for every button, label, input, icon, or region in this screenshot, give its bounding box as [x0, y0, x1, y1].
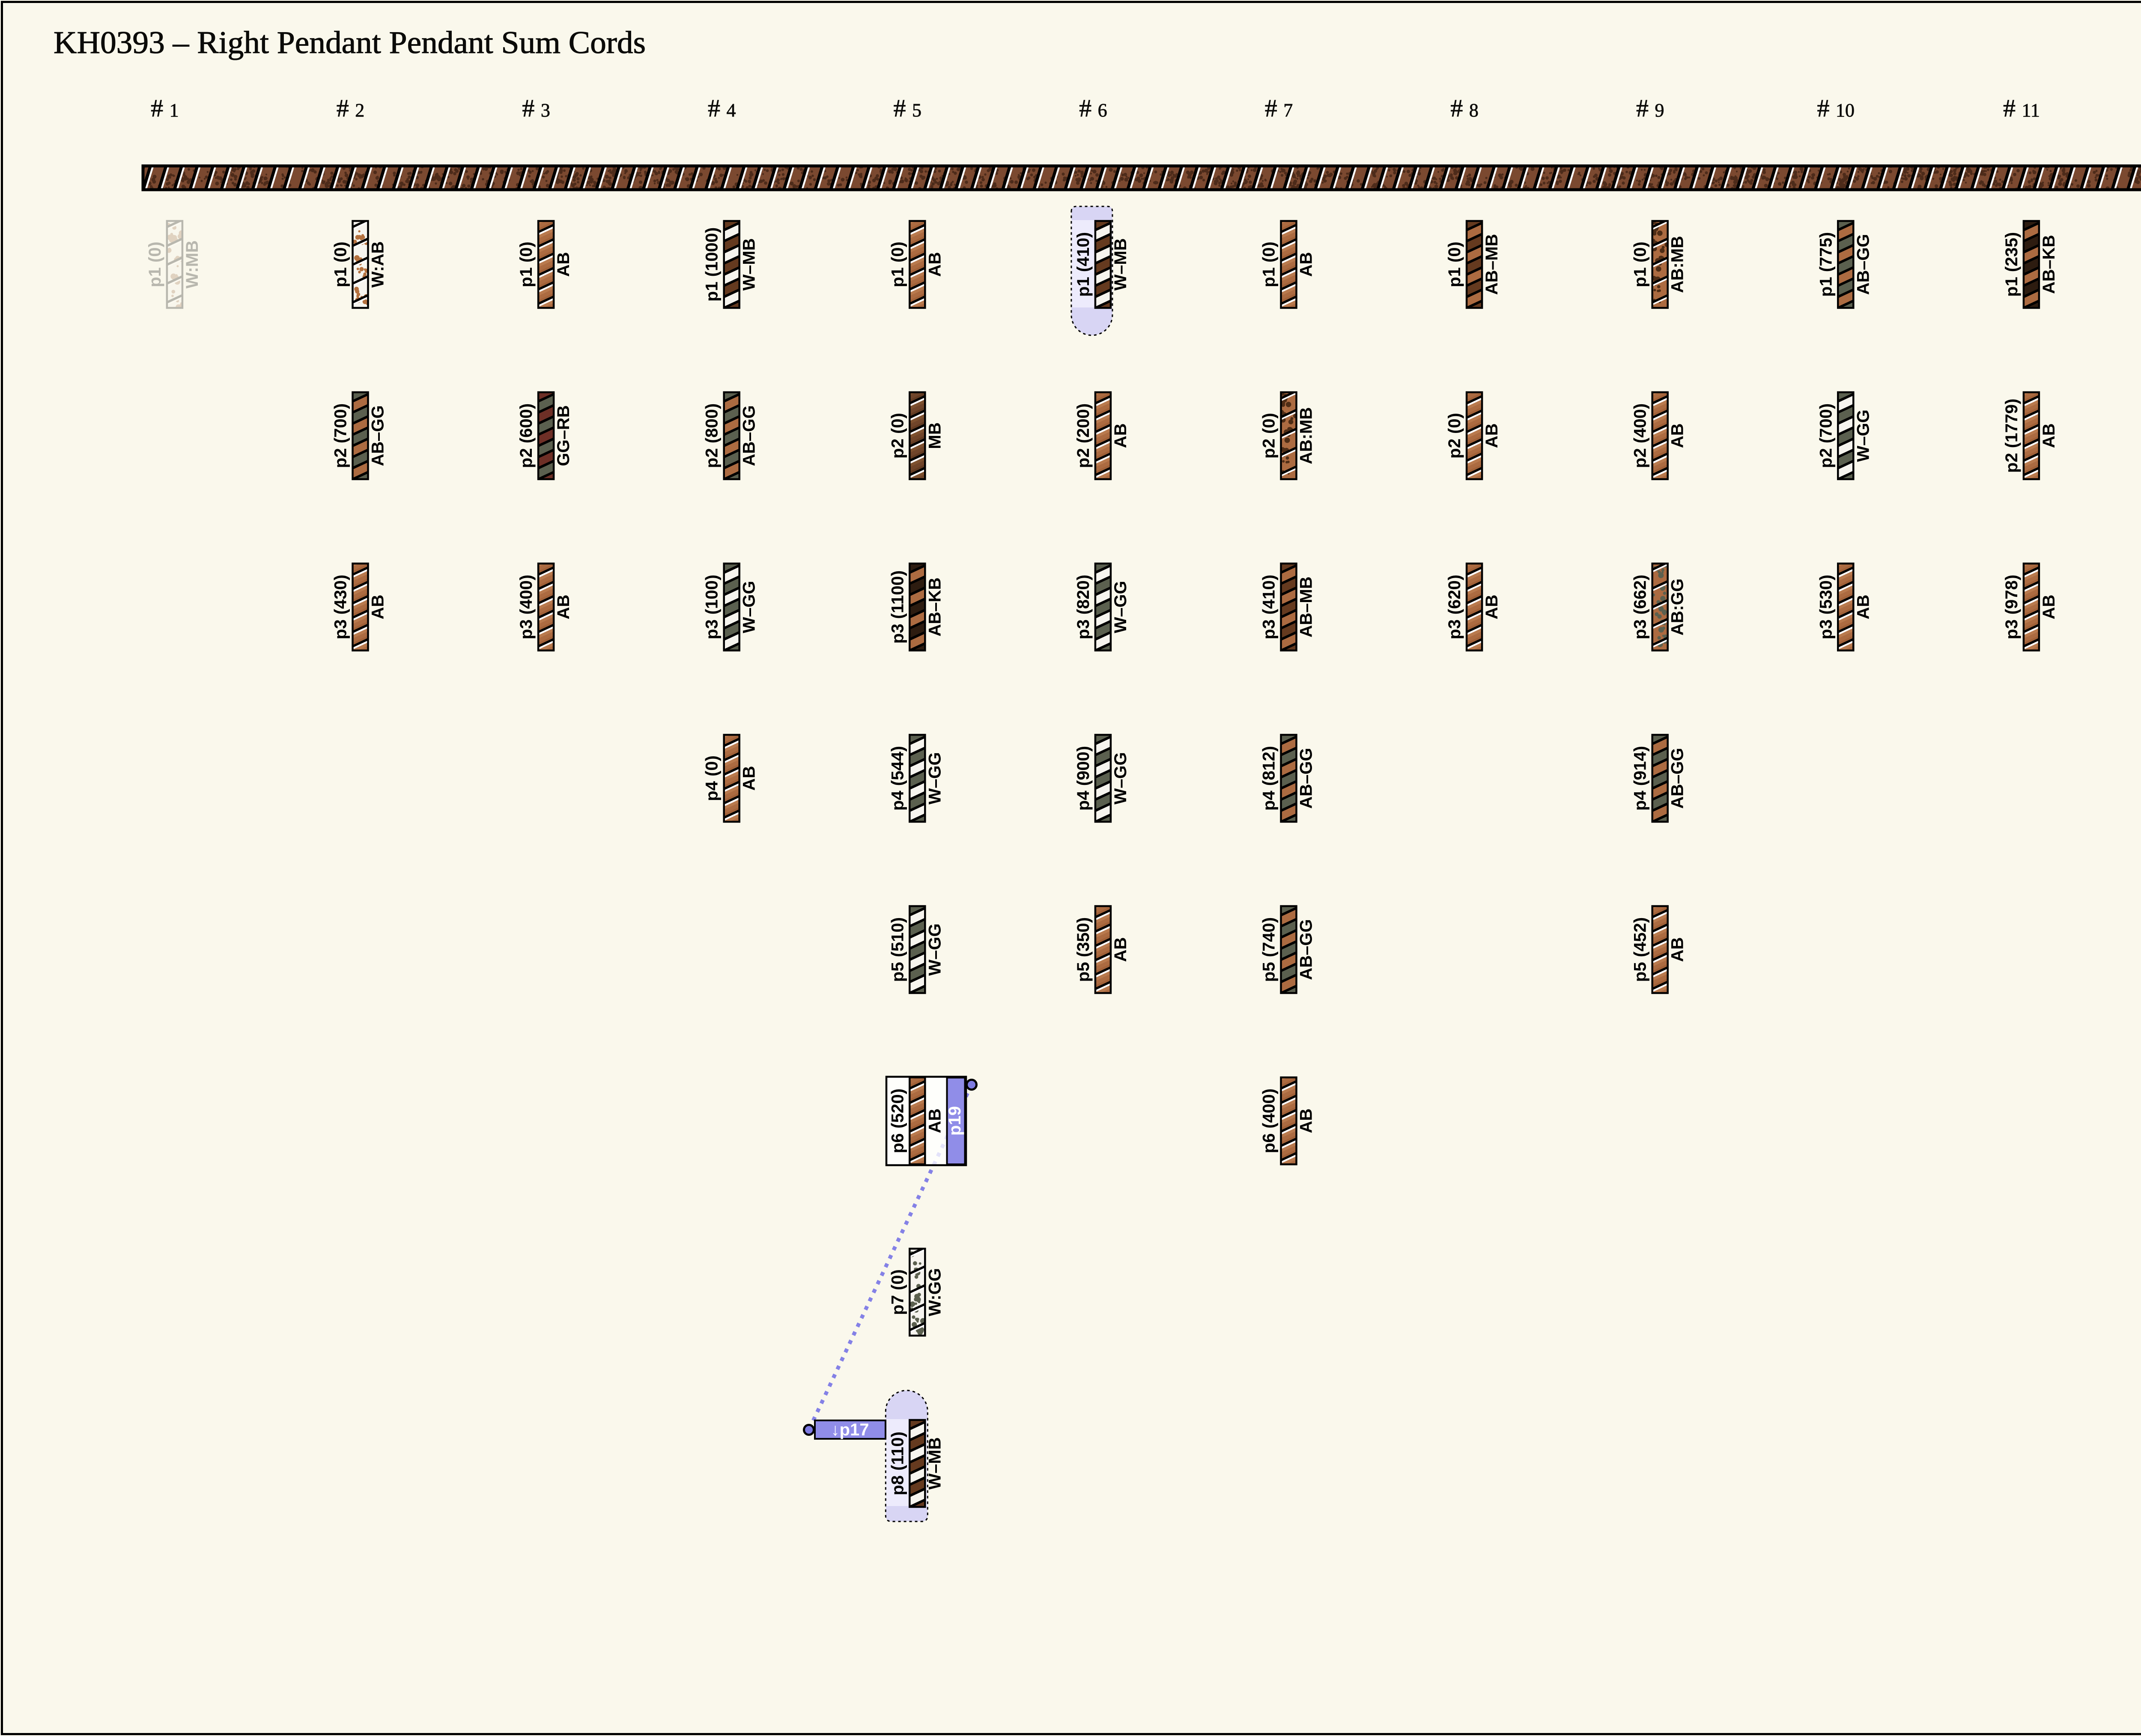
svg-text:AB–GG: AB–GG: [740, 405, 759, 466]
svg-text:W:MB: W:MB: [183, 240, 202, 289]
svg-text:W–MB: W–MB: [925, 1437, 944, 1489]
svg-text:p7 (0): p7 (0): [888, 1269, 907, 1315]
svg-text:AB: AB: [554, 252, 573, 277]
svg-text:W–GG: W–GG: [925, 752, 944, 804]
svg-text:AB:GG: AB:GG: [1668, 579, 1687, 635]
svg-text:↓p17: ↓p17: [831, 1420, 869, 1439]
svg-text:W–GG: W–GG: [1111, 752, 1130, 804]
svg-text:AB: AB: [1297, 1109, 1316, 1133]
svg-text:p19: p19: [945, 1106, 964, 1136]
svg-text:AB: AB: [740, 766, 759, 791]
svg-text:p1 (775): p1 (775): [1816, 232, 1835, 297]
svg-text:p5 (510): p5 (510): [888, 917, 907, 982]
svg-text:p4 (0): p4 (0): [703, 755, 722, 801]
svg-text:p1 (410): p1 (410): [1074, 232, 1093, 297]
svg-text:p4 (900): p4 (900): [1074, 746, 1093, 811]
svg-text:p3 (662): p3 (662): [1631, 575, 1650, 639]
svg-text:p5 (740): p5 (740): [1260, 917, 1279, 982]
svg-text:p6 (400): p6 (400): [1260, 1089, 1279, 1153]
svg-text:p1 (0): p1 (0): [331, 242, 350, 287]
svg-text:p1 (0): p1 (0): [888, 242, 907, 287]
svg-text:AB–GG: AB–GG: [1297, 748, 1316, 808]
svg-text:AB:MB: AB:MB: [1668, 236, 1687, 293]
svg-text:p1 (0): p1 (0): [517, 242, 536, 287]
svg-text:p3 (430): p3 (430): [331, 575, 350, 639]
svg-text:AB: AB: [1482, 595, 1501, 620]
svg-text:p3 (530): p3 (530): [1816, 575, 1835, 639]
svg-text:p2 (800): p2 (800): [703, 403, 722, 468]
svg-text:p8 (110): p8 (110): [888, 1432, 907, 1495]
svg-text:AB–GG: AB–GG: [369, 405, 388, 466]
svg-text:W–MB: W–MB: [740, 238, 759, 290]
svg-text:p2 (1779): p2 (1779): [2002, 399, 2021, 473]
svg-text:p3 (100): p3 (100): [703, 575, 722, 639]
svg-text:p2 (0): p2 (0): [888, 413, 907, 459]
svg-text:p5 (350): p5 (350): [1074, 917, 1093, 982]
svg-text:p4 (914): p4 (914): [1631, 746, 1650, 811]
svg-text:p2 (400): p2 (400): [1631, 403, 1650, 468]
svg-text:AB–KB: AB–KB: [2040, 235, 2058, 294]
svg-text:W–MB: W–MB: [1111, 238, 1130, 290]
svg-text:AB: AB: [1854, 595, 1873, 620]
svg-text:p4 (544): p4 (544): [888, 746, 907, 811]
svg-text:p2 (700): p2 (700): [331, 403, 350, 468]
svg-text:AB: AB: [369, 595, 388, 620]
svg-text:AB: AB: [554, 595, 573, 620]
svg-text:p6 (520): p6 (520): [888, 1089, 907, 1153]
svg-text:p2 (0): p2 (0): [1260, 413, 1279, 459]
svg-text:AB–MB: AB–MB: [1297, 576, 1316, 637]
svg-text:p2 (600): p2 (600): [517, 403, 536, 468]
svg-text:AB: AB: [2040, 424, 2058, 448]
svg-text:MB: MB: [925, 422, 944, 449]
svg-text:AB: AB: [2040, 595, 2058, 620]
svg-text:AB: AB: [1482, 424, 1501, 448]
svg-text:AB: AB: [925, 1109, 944, 1133]
svg-text:p3 (400): p3 (400): [517, 575, 536, 639]
svg-text:AB–GG: AB–GG: [1854, 234, 1873, 295]
svg-text:p3 (410): p3 (410): [1260, 575, 1279, 639]
svg-text:AB:MB: AB:MB: [1297, 407, 1316, 464]
svg-text:AB: AB: [1111, 937, 1130, 962]
svg-text:p3 (820): p3 (820): [1074, 575, 1093, 639]
svg-text:p2 (200): p2 (200): [1074, 403, 1093, 468]
svg-text:p2 (0): p2 (0): [1445, 413, 1464, 459]
svg-text:p1 (0): p1 (0): [1260, 242, 1279, 287]
svg-text:AB: AB: [925, 252, 944, 277]
svg-text:p4 (812): p4 (812): [1260, 746, 1279, 811]
svg-text:p1 (0): p1 (0): [1445, 242, 1464, 287]
svg-text:W–GG: W–GG: [1111, 581, 1130, 633]
svg-text:p3 (1100): p3 (1100): [888, 570, 907, 644]
svg-text:AB–GG: AB–GG: [1297, 919, 1316, 980]
svg-text:p2 (700): p2 (700): [1816, 403, 1835, 468]
svg-text:AB–GG: AB–GG: [1668, 748, 1687, 808]
svg-text:AB: AB: [1668, 424, 1687, 448]
svg-text:AB: AB: [1297, 252, 1316, 277]
svg-text:p1 (1000): p1 (1000): [703, 227, 722, 301]
svg-text:W:GG: W:GG: [925, 1268, 944, 1316]
svg-text:AB–MB: AB–MB: [1482, 234, 1501, 295]
svg-text:AB: AB: [1668, 937, 1687, 962]
svg-text:AB–KB: AB–KB: [925, 578, 944, 637]
svg-text:W:AB: W:AB: [369, 241, 388, 287]
svg-text:p1 (0): p1 (0): [1631, 242, 1650, 287]
svg-text:p1 (235): p1 (235): [2002, 232, 2021, 297]
svg-text:p1 (0): p1 (0): [146, 242, 164, 287]
svg-text:p3 (978): p3 (978): [2002, 575, 2021, 639]
svg-text:AB: AB: [1111, 424, 1130, 448]
svg-text:W–GG: W–GG: [925, 923, 944, 975]
svg-text:p3 (620): p3 (620): [1445, 575, 1464, 639]
svg-text:W–GG: W–GG: [740, 581, 759, 633]
svg-text:KH0393 – Right Pendant Pendant: KH0393 – Right Pendant Pendant Sum Cords: [54, 25, 646, 60]
svg-text:p5 (452): p5 (452): [1631, 917, 1650, 982]
svg-text:W–GG: W–GG: [1854, 409, 1873, 462]
svg-text:GG–RB: GG–RB: [554, 405, 573, 466]
